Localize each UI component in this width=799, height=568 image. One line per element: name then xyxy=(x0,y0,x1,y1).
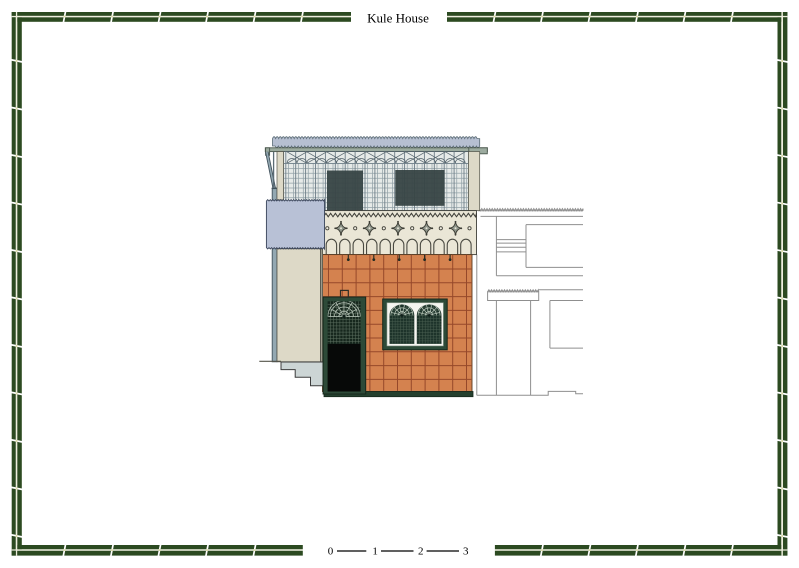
svg-text:2: 2 xyxy=(418,546,424,558)
svg-text:3: 3 xyxy=(463,546,469,558)
svg-text:1: 1 xyxy=(372,546,378,558)
svg-text:Kule House: Kule House xyxy=(367,11,429,26)
svg-text:0: 0 xyxy=(328,546,334,558)
